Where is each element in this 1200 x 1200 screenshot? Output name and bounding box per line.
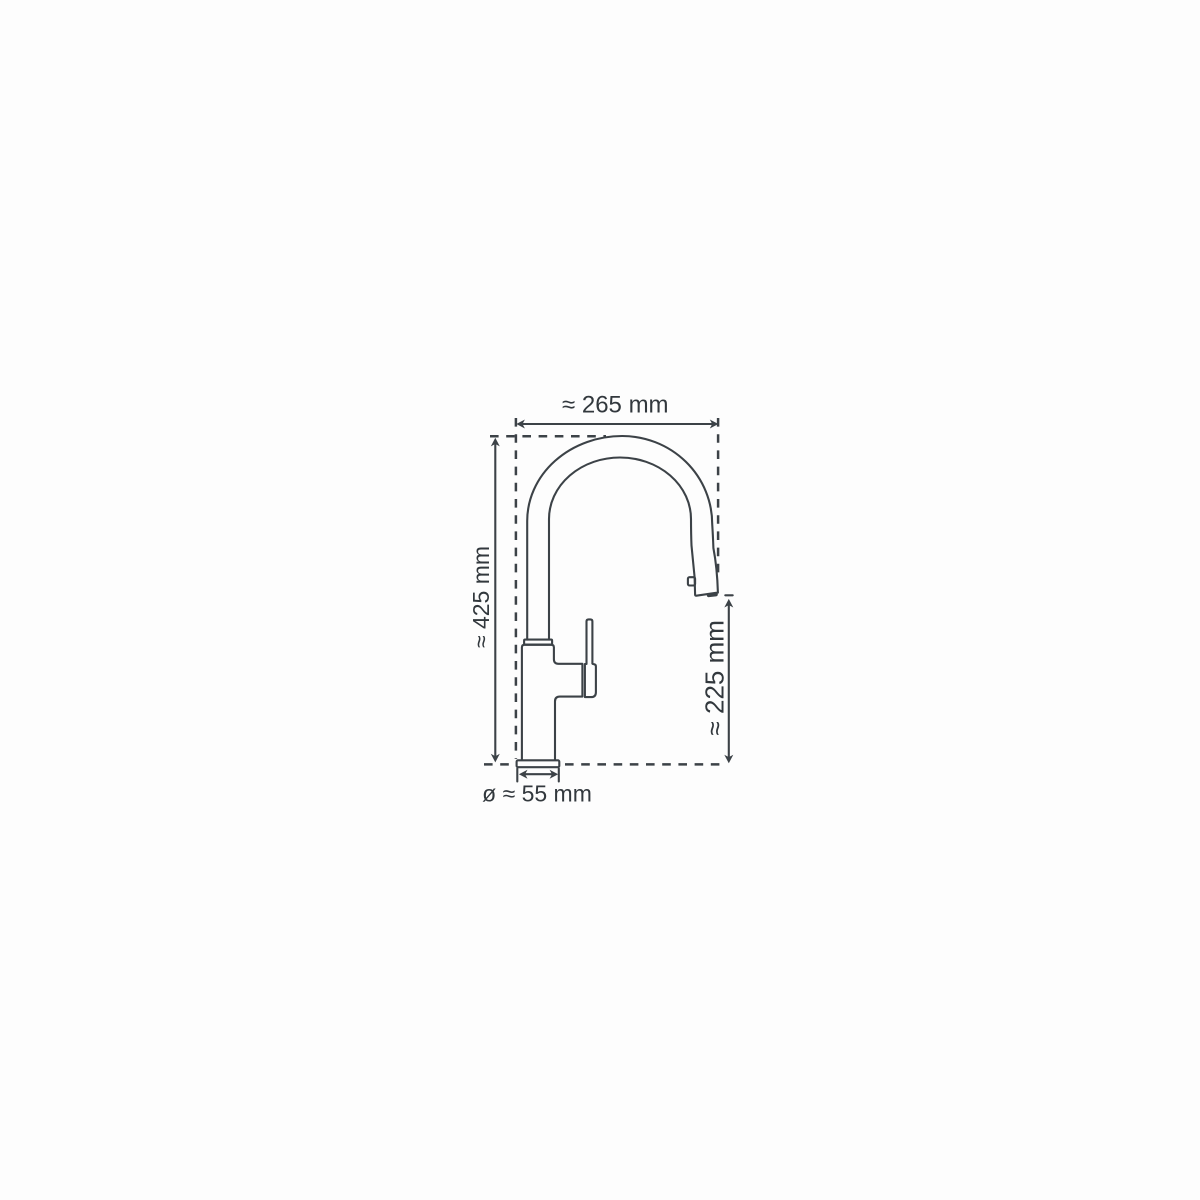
svg-text:≈ 225 mm: ≈ 225 mm	[700, 620, 730, 735]
svg-text:ø ≈ 55 mm: ø ≈ 55 mm	[482, 781, 592, 807]
svg-text:≈ 425 mm: ≈ 425 mm	[468, 546, 494, 648]
svg-text:≈ 265 mm: ≈ 265 mm	[562, 392, 669, 419]
